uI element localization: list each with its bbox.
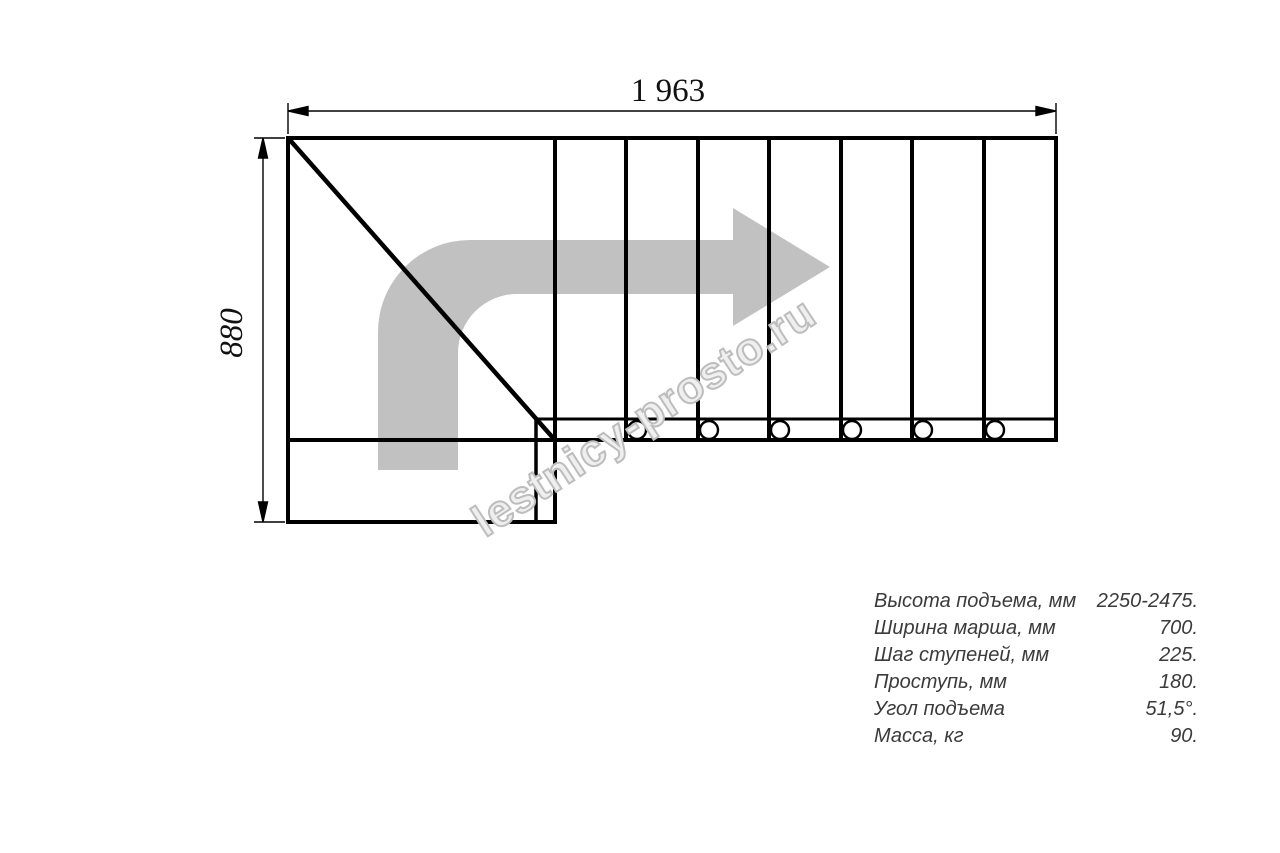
mount-hole-circle [843,421,861,439]
mount-hole-circle [914,421,932,439]
dim-arrowhead-right [1036,107,1056,116]
spec-row-tread-depth: Проступь, мм 180. [874,669,1198,696]
spec-label: Высота подъема, мм [874,588,1076,615]
dim-arrowhead-top [259,138,268,158]
dim-arrowhead-bottom [259,502,268,522]
dim-arrowhead-left [288,107,308,116]
spec-label: Масса, кг [874,723,964,750]
spec-row-flight-width: Ширина марша, мм 700. [874,615,1198,642]
mount-hole-circle [700,421,718,439]
turn-right-arrow-icon [378,208,830,470]
spec-value: 51,5°. [1146,696,1198,723]
spec-value: 2250-2475. [1097,588,1198,615]
spec-label: Угол подъема [874,696,1005,723]
spec-value: 700. [1159,615,1198,642]
mount-hole-circle [628,421,646,439]
height-dimension [254,138,285,522]
spec-row-mass: Масса, кг 90. [874,723,1198,750]
width-dimension-label: 1 963 [631,73,705,109]
spec-row-climb-angle: Угол подъема 51,5°. [874,696,1198,723]
stair-plan-page: 1 963 880 lestnicy-prosto.ru Высота подъ… [0,0,1280,853]
spec-value: 225. [1159,642,1198,669]
spec-label: Ширина марша, мм [874,615,1056,642]
mount-hole-circle [986,421,1004,439]
spec-label: Шаг ступеней, мм [874,642,1049,669]
height-dimension-label: 880 [214,308,250,358]
spec-row-height: Высота подъема, мм 2250-2475. [874,588,1198,615]
spec-value: 90. [1170,723,1198,750]
spec-table: Высота подъема, мм 2250-2475. Ширина мар… [874,588,1198,750]
tread-dividers [555,138,984,522]
mount-hole-circle [771,421,789,439]
spec-label: Проступь, мм [874,669,1007,696]
spec-row-step-pitch: Шаг ступеней, мм 225. [874,642,1198,669]
spec-value: 180. [1159,669,1198,696]
mount-holes [628,421,1004,439]
